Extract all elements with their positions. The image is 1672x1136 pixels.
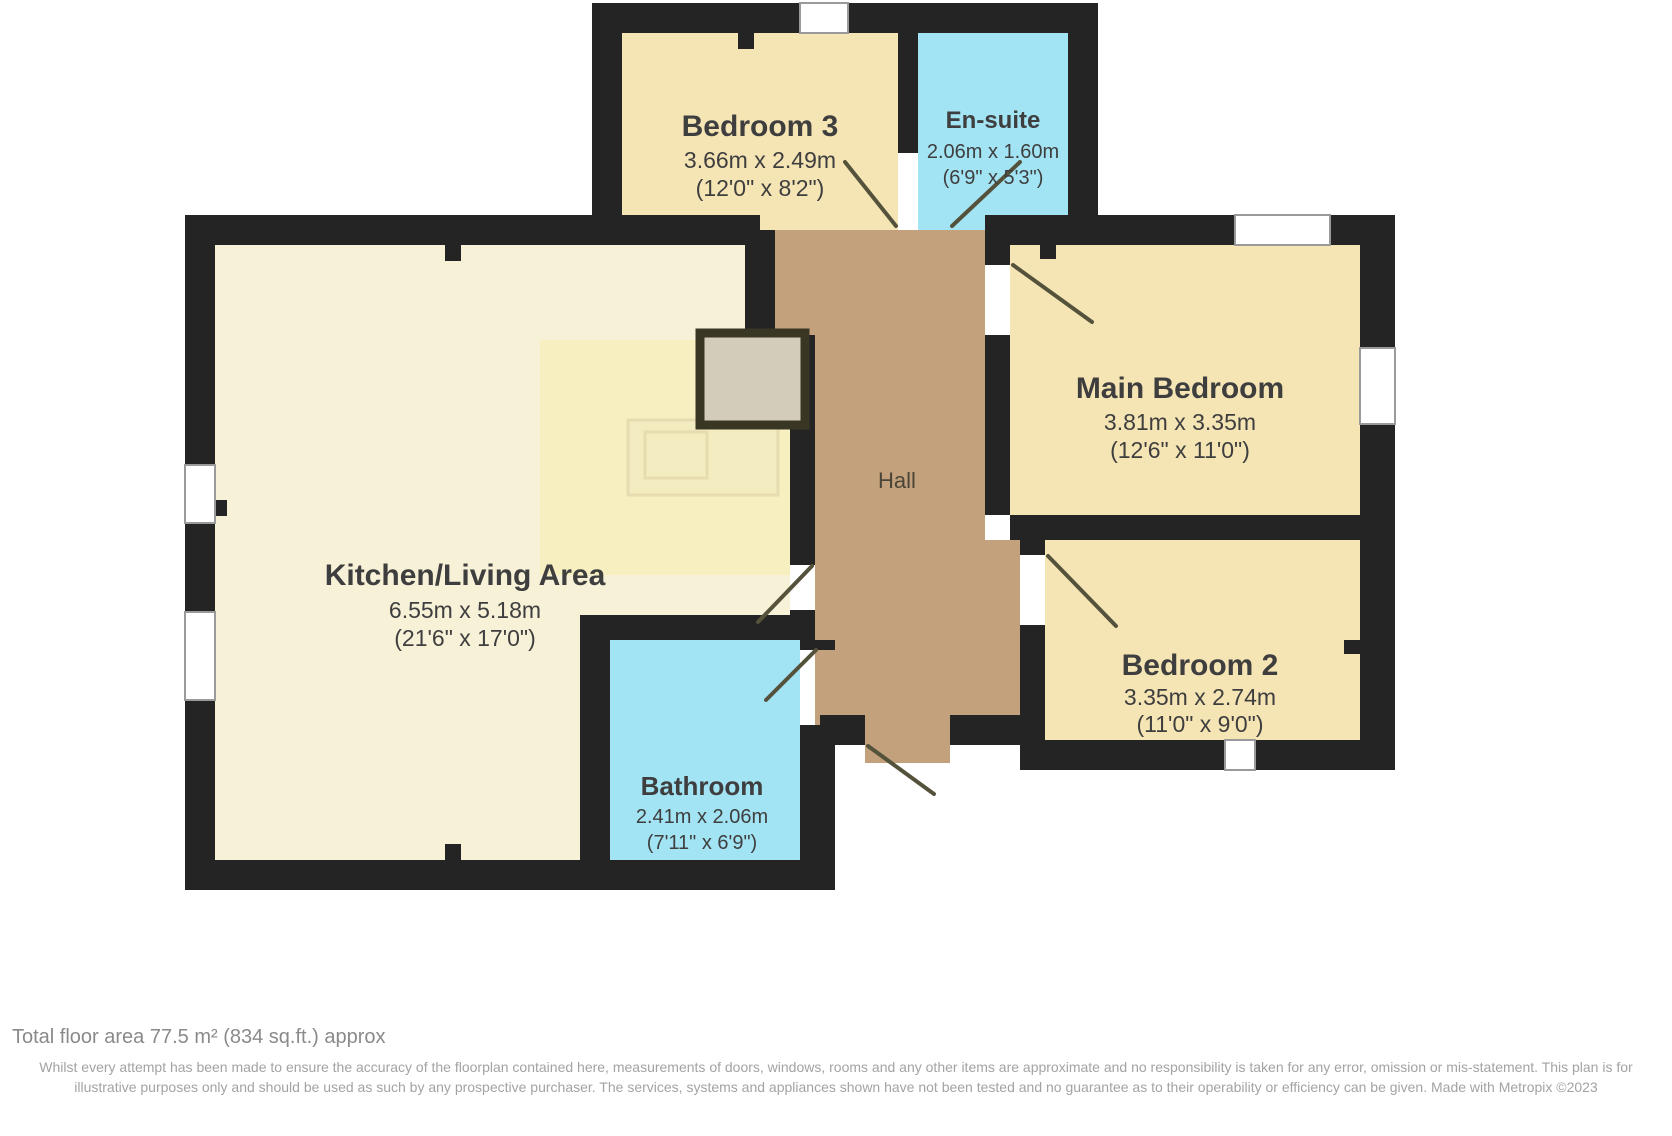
- disclaimer-text: Whilst every attempt has been made to en…: [10, 1058, 1662, 1097]
- ensuite-dim-metric: 2.06m x 1.60m: [927, 141, 1059, 163]
- window: [185, 465, 215, 523]
- wall-segment: [1010, 515, 1360, 540]
- window: [800, 3, 848, 33]
- floorplan-page: Bedroom 3 3.66m x 2.49m (12'0" x 8'2") E…: [0, 0, 1672, 1136]
- bedroom2-dim-metric: 3.35m x 2.74m: [1124, 684, 1276, 710]
- wall-segment: [1020, 625, 1045, 745]
- wall-segment: [985, 215, 1395, 245]
- bedroom3-label: Bedroom 3: [682, 110, 839, 143]
- wall-segment: [580, 615, 800, 640]
- main-bedroom-label: Main Bedroom: [1076, 372, 1284, 405]
- wall-segment: [1020, 540, 1045, 555]
- wall-segment: [1068, 3, 1098, 245]
- wall-segment: [185, 215, 215, 890]
- wall-segment: [898, 33, 918, 153]
- wall-segment: [745, 230, 775, 340]
- bedroom2-label: Bedroom 2: [1122, 649, 1279, 682]
- bathroom-dim-imperial: (7'11" x 6'9"): [647, 832, 757, 854]
- wall-nub: [738, 33, 754, 49]
- hall-floor-mid: [815, 340, 985, 540]
- hall-floor-bottom: [815, 540, 1020, 745]
- bedroom2-floor: [1045, 540, 1360, 740]
- wall-segment: [1360, 215, 1395, 770]
- total-floor-area: Total floor area 77.5 m² (834 sq.ft.) ap…: [12, 1026, 386, 1049]
- bedroom2-dim-imperial: (11'0" x 9'0"): [1137, 711, 1264, 737]
- cupboard: [700, 333, 805, 425]
- wall-segment: [790, 425, 815, 565]
- wall-segment: [592, 3, 622, 230]
- wall-nub: [445, 844, 461, 860]
- wall-segment: [820, 715, 865, 745]
- wall-nub: [1344, 640, 1360, 654]
- wall-nub: [445, 245, 461, 261]
- ensuite-dim-imperial: (6'9" x 5'3"): [943, 167, 1044, 189]
- wall-segment: [185, 215, 760, 245]
- main-bedroom-dim-imperial: (12'6" x 11'0"): [1110, 437, 1250, 463]
- bedroom3-dim-metric: 3.66m x 2.49m: [684, 147, 836, 173]
- kitchen-living-dim-metric: 6.55m x 5.18m: [389, 597, 541, 623]
- kitchen-living-dim-imperial: (21'6" x 17'0"): [394, 625, 535, 651]
- window: [1235, 215, 1330, 245]
- wall-segment: [580, 615, 610, 860]
- wall-segment: [985, 245, 1010, 265]
- floorplan-drawing: Bedroom 3 3.66m x 2.49m (12'0" x 8'2") E…: [0, 0, 1672, 960]
- window: [1225, 740, 1255, 770]
- wall-segment: [800, 640, 835, 650]
- kitchen-living-label: Kitchen/Living Area: [325, 559, 606, 592]
- kitchen-counter-outlines: [628, 420, 778, 495]
- wall-segment: [1020, 740, 1395, 770]
- ensuite-label: En-suite: [946, 107, 1041, 134]
- window: [185, 612, 215, 700]
- bathroom-label: Bathroom: [641, 771, 764, 801]
- wall-segment: [185, 860, 835, 890]
- front-doorway-floor: [865, 715, 950, 763]
- hall-floor-top: [775, 230, 985, 340]
- window: [1360, 348, 1395, 424]
- wall-nub: [215, 500, 227, 516]
- wall-segment: [800, 725, 835, 890]
- bathroom-floor: [610, 640, 800, 862]
- wall-segment: [950, 715, 1020, 745]
- bathroom-dim-metric: 2.41m x 2.06m: [636, 806, 768, 828]
- wall-segment: [985, 335, 1010, 515]
- hall-label: Hall: [878, 468, 916, 493]
- main-bedroom-dim-metric: 3.81m x 3.35m: [1104, 409, 1256, 435]
- wall-nub: [1040, 245, 1056, 259]
- bedroom3-dim-imperial: (12'0" x 8'2"): [696, 175, 825, 201]
